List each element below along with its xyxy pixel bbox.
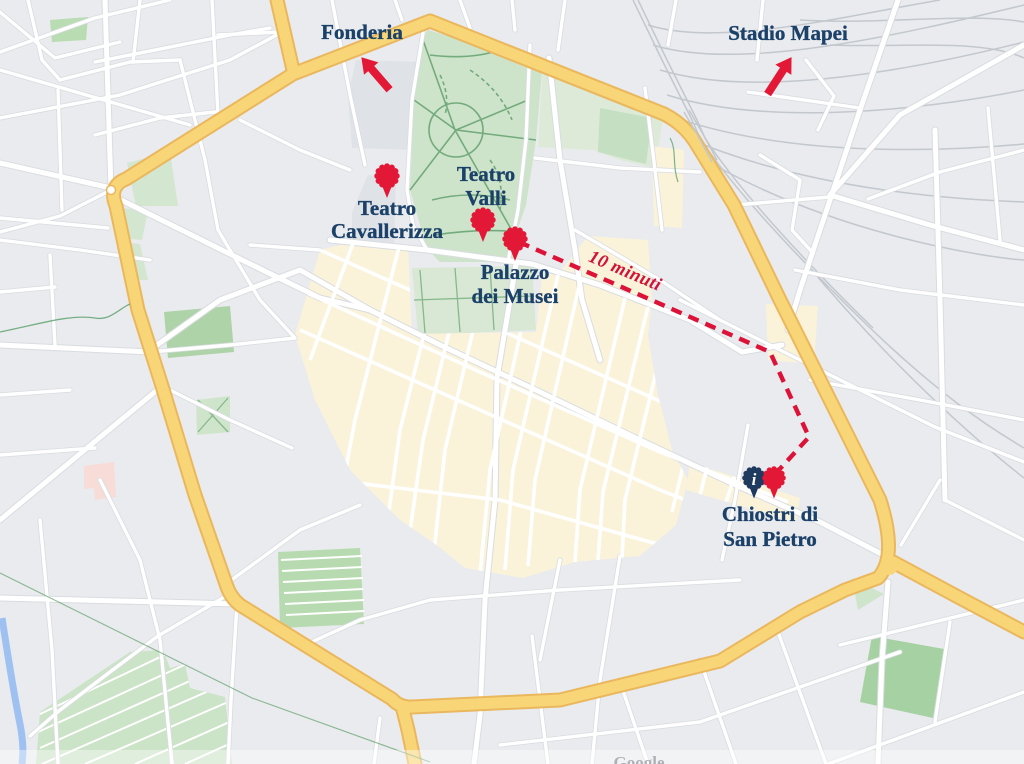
svg-text:i: i: [752, 470, 757, 489]
svg-text:Fonderia: Fonderia: [321, 20, 403, 44]
svg-text:Stadio Mapei: Stadio Mapei: [728, 21, 848, 45]
svg-text:Cavallerizza: Cavallerizza: [331, 219, 443, 243]
svg-text:Google: Google: [614, 753, 665, 764]
svg-text:Teatro: Teatro: [457, 162, 515, 186]
svg-text:dei Musei: dei Musei: [472, 284, 559, 308]
svg-text:San Pietro: San Pietro: [723, 527, 817, 551]
svg-text:Valli: Valli: [465, 186, 506, 210]
svg-text:Chiostri di: Chiostri di: [722, 502, 818, 526]
svg-text:Palazzo: Palazzo: [481, 260, 550, 284]
svg-text:Teatro: Teatro: [358, 196, 416, 220]
